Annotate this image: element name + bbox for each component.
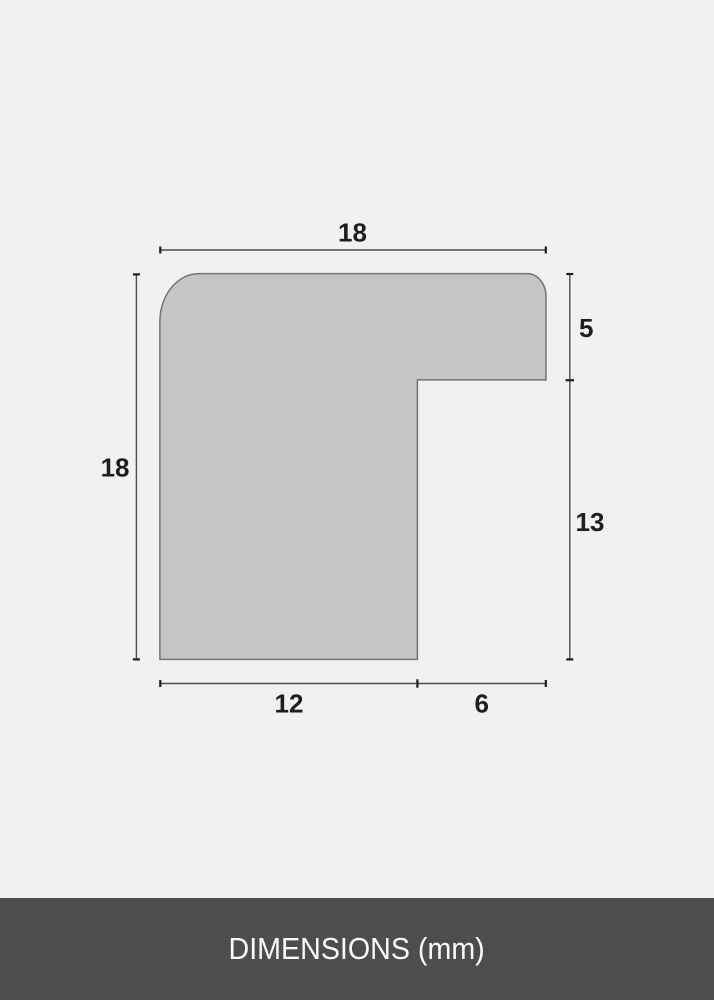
svg-text:6: 6 [474,689,488,719]
svg-text:13: 13 [576,507,605,537]
svg-text:18: 18 [338,218,367,248]
svg-text:5: 5 [579,313,593,343]
svg-text:18: 18 [101,453,130,483]
svg-text:12: 12 [275,689,304,719]
